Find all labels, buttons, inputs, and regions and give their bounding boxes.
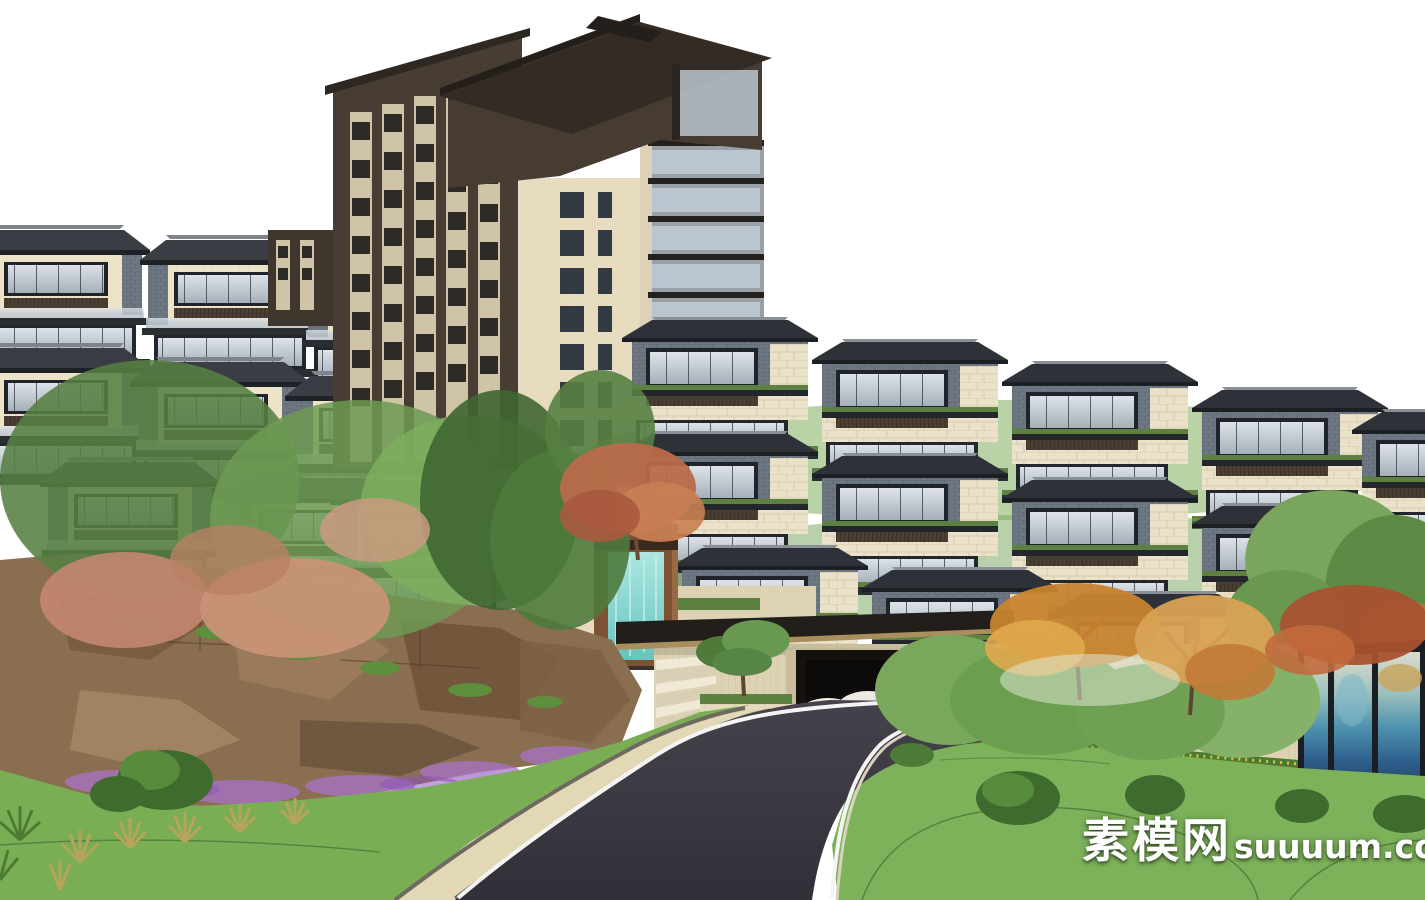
scene: 龙琴	[0, 0, 1425, 900]
watermark: 素模网 suuuum.com	[1082, 818, 1425, 865]
foreground-trees-left	[0, 360, 705, 658]
render-canvas: 龙琴	[0, 0, 1425, 900]
watermark-en: suuuum.com	[1234, 829, 1425, 865]
watermark-cn: 素模网	[1082, 818, 1232, 865]
